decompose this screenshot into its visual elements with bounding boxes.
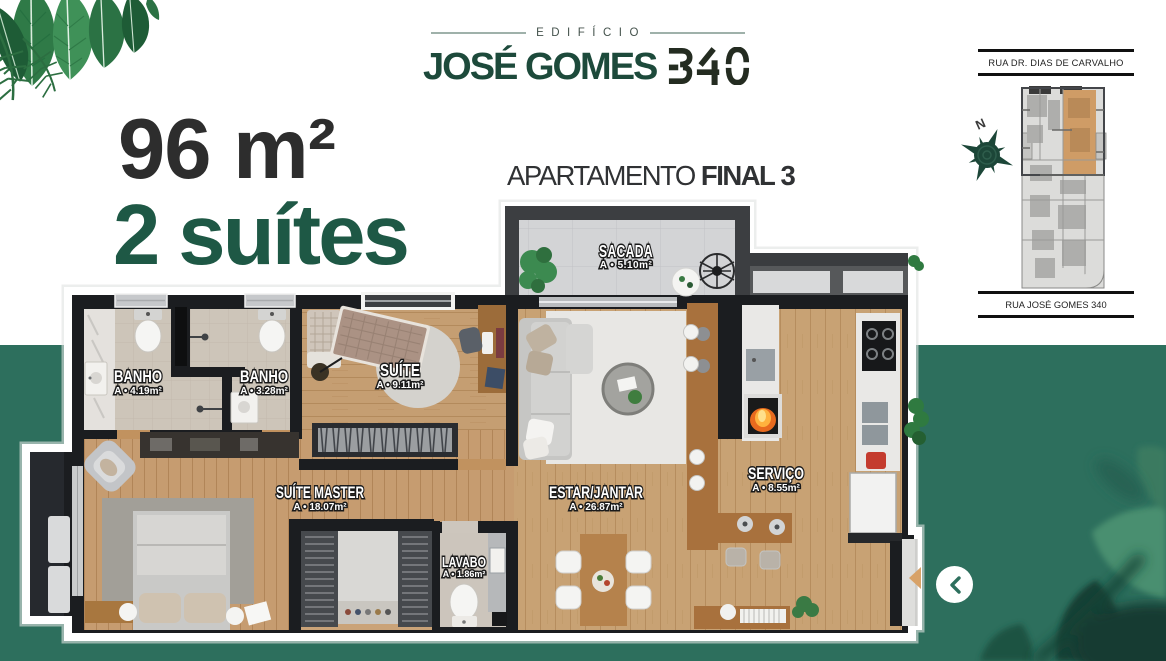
svg-text:ESTAR/JANTAR: ESTAR/JANTAR (549, 483, 643, 502)
svg-text:A • 1.86m²: A • 1.86m² (443, 569, 486, 579)
svg-text:A • 4.19m²: A • 4.19m² (114, 386, 162, 397)
svg-text:BANHO: BANHO (114, 368, 162, 386)
svg-text:A • 5.10m²: A • 5.10m² (600, 260, 653, 271)
svg-text:A • 8.55m²: A • 8.55m² (752, 483, 800, 494)
svg-text:A • 3.28m²: A • 3.28m² (240, 386, 288, 397)
svg-text:A • 9.11m²: A • 9.11m² (376, 380, 424, 391)
svg-text:BANHO: BANHO (240, 368, 288, 386)
svg-text:A • 18.07m²: A • 18.07m² (293, 502, 347, 513)
svg-text:N: N (973, 115, 988, 133)
svg-text:SACADA: SACADA (599, 241, 653, 261)
svg-text:SUÍTE MASTER: SUÍTE MASTER (276, 483, 364, 502)
svg-text:SUÍTE: SUÍTE (380, 359, 420, 380)
svg-text:A • 26.87m²: A • 26.87m² (569, 502, 623, 513)
svg-text:SERVIÇO: SERVIÇO (748, 465, 804, 483)
